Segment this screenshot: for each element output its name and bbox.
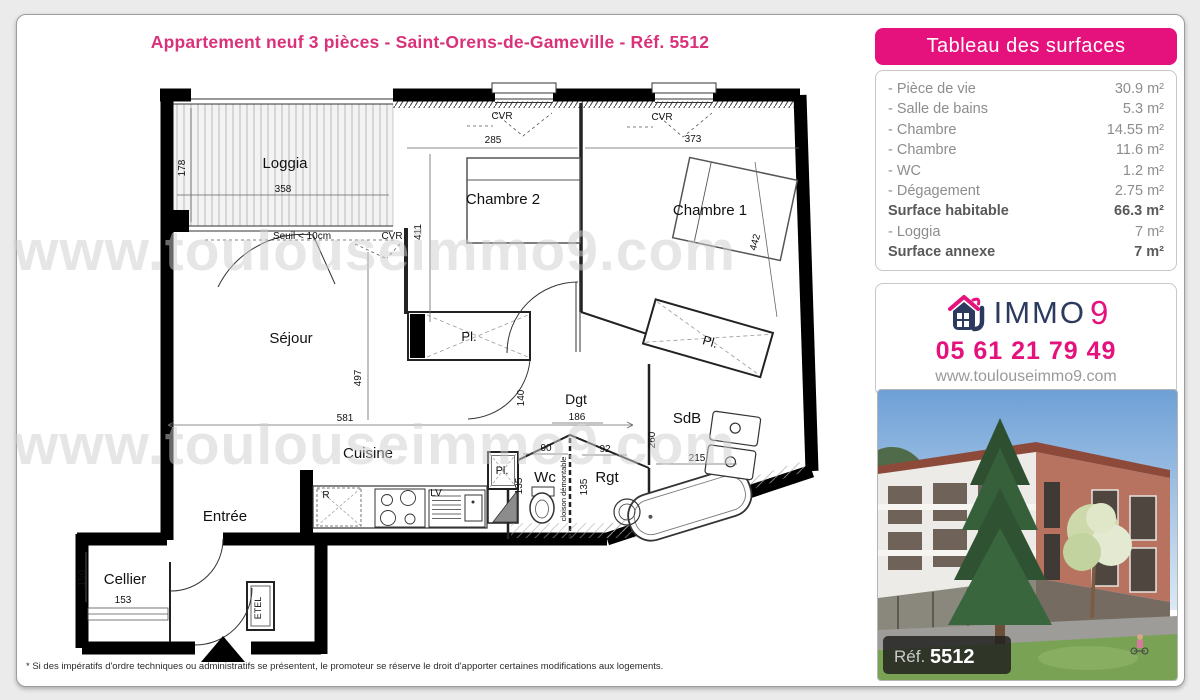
plan-label: R (322, 490, 329, 501)
plan-label: 178 (177, 159, 188, 176)
plan-label: 260 (647, 431, 658, 448)
plan-label: Chambre 1 (673, 202, 747, 219)
row-value: 1.2 m² (1123, 161, 1164, 181)
plan-label: 358 (275, 184, 292, 195)
row-label: - Chambre (888, 120, 957, 140)
plan-label: 186 (569, 412, 586, 423)
row-label: - Loggia (888, 222, 940, 242)
plan-label: 373 (685, 134, 702, 145)
plan-label: ETEL (253, 597, 263, 620)
plan-label: CVR (651, 112, 672, 123)
plan-label: 153 (115, 595, 132, 606)
plan-label: cloison démontable (559, 457, 568, 522)
ref-number: 5512 (930, 646, 975, 668)
plan-label: 90 (540, 443, 552, 454)
plan-label: SdB (673, 410, 701, 427)
row-value: 30.9 m² (1115, 79, 1164, 99)
ref-badge: Réf. 5512 (883, 636, 1011, 674)
row-value: 5.3 m² (1123, 99, 1164, 119)
table-row: - Loggia 7 m² (888, 222, 1164, 242)
table-row: - Dégagement 2.75 m² (888, 181, 1164, 201)
wall-stub (300, 470, 313, 539)
plan-label: 135 (514, 477, 525, 494)
plan-label: 135 (579, 478, 590, 495)
plan-label: Seuil < 10cm (273, 231, 331, 242)
row-value: 2.75 m² (1115, 181, 1164, 201)
surfaces-table: - Pièce de vie 30.9 m² - Salle de bains … (875, 70, 1177, 271)
floor-plan-area: Loggia178358Seuil < 10cmCVRCVR285CVR373C… (55, 82, 845, 662)
agency-phone: 05 61 21 79 49 (876, 337, 1176, 366)
table-row: - Pièce de vie 30.9 m² (888, 79, 1164, 99)
row-value: 14.55 m² (1107, 120, 1164, 140)
plan-label: LV (430, 488, 442, 499)
plan-label: Entrée (203, 508, 247, 525)
plan-label: Pl. (496, 465, 509, 477)
wall-insulation (393, 102, 800, 109)
brand-9: 9 (1090, 294, 1108, 332)
door-arcs (171, 234, 580, 645)
plan-label: Wc (534, 469, 556, 486)
plan-label: Chambre 2 (466, 191, 540, 208)
row-label: - Dégagement (888, 181, 980, 201)
plan-label: 285 (485, 135, 502, 146)
row-value: 7 m² (1134, 242, 1164, 262)
plan-label: CVR (491, 111, 512, 122)
page: Appartement neuf 3 pièces - Saint-Orens-… (0, 0, 1200, 700)
house-icon (944, 292, 990, 334)
plan-label: Rgt (595, 469, 619, 486)
cellier-shelf (88, 608, 168, 620)
bathroom-sinks (705, 411, 761, 480)
page-title: Appartement neuf 3 pièces - Saint-Orens-… (40, 32, 820, 53)
plan-label: Pl. (461, 329, 476, 344)
plan-label: 581 (337, 413, 354, 424)
plan-label: 497 (353, 369, 364, 386)
ref-label: Réf. (894, 647, 925, 666)
plan-label: CVR (381, 231, 402, 242)
agency-website: www.toulouseimmo9.com (876, 368, 1176, 386)
plan-label: Cuisine (343, 445, 393, 462)
plan-label: Séjour (269, 330, 312, 347)
row-value: 7 m² (1135, 222, 1164, 242)
row-label: - WC (888, 161, 921, 181)
right-column: Tableau des surfaces - Pièce de vie 30.9… (875, 28, 1177, 396)
kitchen-counter (313, 486, 487, 528)
floor-plan: Loggia178358Seuil < 10cmCVRCVR285CVR373C… (55, 82, 845, 662)
toilet (530, 487, 554, 523)
row-value: 66.3 m² (1114, 201, 1164, 221)
row-label: Surface annexe (888, 242, 995, 262)
table-row-total: Surface habitable 66.3 m² (888, 201, 1164, 221)
table-row: - Salle de bains 5.3 m² (888, 99, 1164, 119)
table-row: - WC 1.2 m² (888, 161, 1164, 181)
plan-label: Dgt (565, 391, 587, 407)
plan-label: 140 (516, 389, 527, 406)
row-label: - Pièce de vie (888, 79, 976, 99)
plan-label: 92 (599, 444, 611, 455)
lawn-highlight (1038, 646, 1138, 670)
table-row: - Chambre 14.55 m² (888, 120, 1164, 140)
entrance-arrow (201, 636, 245, 662)
table-row-total: Surface annexe 7 m² (888, 242, 1164, 262)
plan-label: Cellier (104, 571, 147, 588)
plan-label: 411 (413, 224, 424, 240)
plan-label: 215 (689, 453, 706, 464)
row-label: Surface habitable (888, 201, 1009, 221)
footer-note: * Si des impératifs d'ordre techniques o… (26, 661, 663, 672)
building-render: Réf. 5512 (878, 390, 1177, 680)
plan-label: 150 (77, 569, 88, 586)
building-photo: Réf. 5512 (877, 389, 1178, 681)
table-row: - Chambre 11.6 m² (888, 140, 1164, 160)
plan-label: Loggia (262, 155, 308, 172)
row-label: - Salle de bains (888, 99, 988, 119)
agency-logo: IMMO9 (876, 292, 1176, 334)
brand-immo: IMMO (994, 295, 1086, 331)
agency-card: IMMO9 05 61 21 79 49 www.toulouseimmo9.c… (875, 283, 1177, 396)
row-value: 11.6 m² (1116, 140, 1164, 160)
surfaces-panel-title: Tableau des surfaces (875, 28, 1177, 65)
row-label: - Chambre (888, 140, 957, 160)
